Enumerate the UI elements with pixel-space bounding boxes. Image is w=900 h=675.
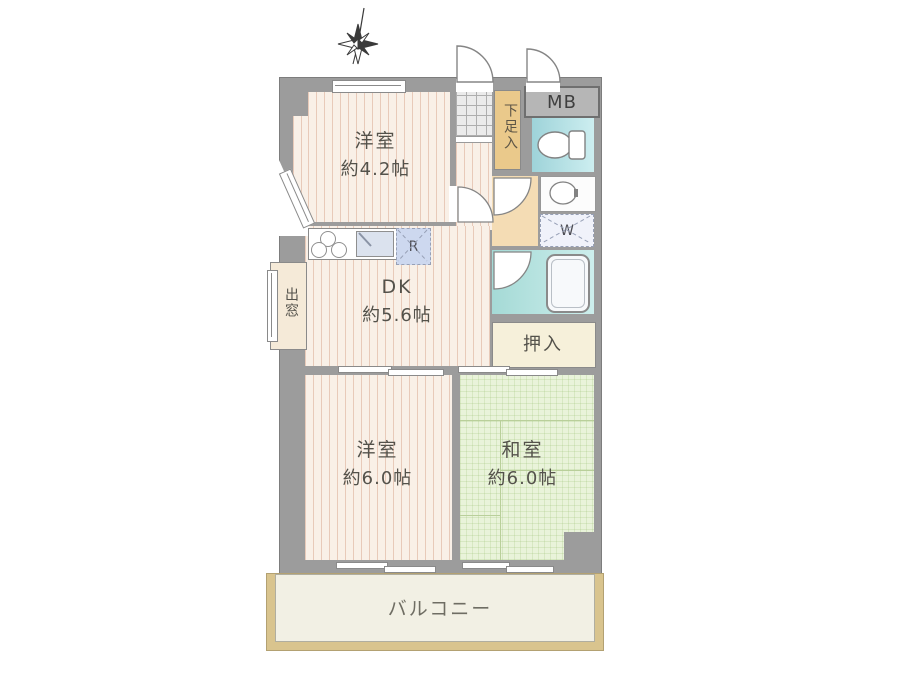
entrance-opening — [456, 79, 493, 92]
sliding-window-top — [332, 80, 406, 93]
service-opening — [526, 79, 560, 92]
bathtub-icon — [546, 254, 590, 313]
door-opening — [449, 186, 457, 222]
balcony-window — [506, 566, 554, 573]
stove-burner-icon — [311, 242, 327, 258]
closet-label: 押入 — [492, 332, 594, 358]
room-dk-label: DK 約5.6帖 — [312, 274, 482, 329]
shoe-cabinet-label: 下足入 — [500, 103, 520, 151]
balcony-window — [336, 562, 388, 569]
meter-box-label: MB — [547, 92, 577, 113]
bay-window-label: 出窓 — [281, 287, 301, 319]
balcony-window — [462, 562, 510, 569]
stove-burner-icon — [331, 242, 347, 258]
kitchen-sink-icon — [356, 231, 394, 257]
room-japanese-6-0-label: 和室 約6.0帖 — [440, 437, 605, 492]
tatami-seam — [460, 515, 500, 516]
tatami-seam — [460, 420, 594, 421]
wall-notch — [564, 532, 594, 560]
genkan-step — [456, 136, 492, 143]
floorplan-canvas: 下足入 MB W R 出窓 押入 — [0, 0, 900, 675]
refrigerator-space: R — [396, 228, 431, 265]
balcony-label: バルコニー — [340, 596, 540, 624]
washbasin-room — [540, 176, 596, 212]
entrance-genkan-tiles — [456, 92, 492, 136]
compass-north-icon — [338, 8, 378, 64]
sliding-door — [388, 369, 444, 376]
washing-machine-label: W — [560, 223, 574, 239]
sliding-door — [458, 366, 510, 373]
hallway — [456, 142, 492, 230]
refrigerator-label: R — [409, 239, 419, 255]
washroom — [492, 176, 538, 246]
room-western-4-2-label: 洋室 約4.2帖 — [293, 128, 458, 183]
door-arc — [457, 46, 560, 82]
bay-window-glass — [267, 270, 278, 342]
sliding-door — [506, 369, 558, 376]
sliding-door — [338, 366, 392, 373]
washing-machine-space: W — [540, 214, 594, 247]
balcony-window — [384, 566, 436, 573]
room-western-6-0-label: 洋室 約6.0帖 — [295, 437, 460, 492]
toilet-room — [532, 118, 594, 172]
